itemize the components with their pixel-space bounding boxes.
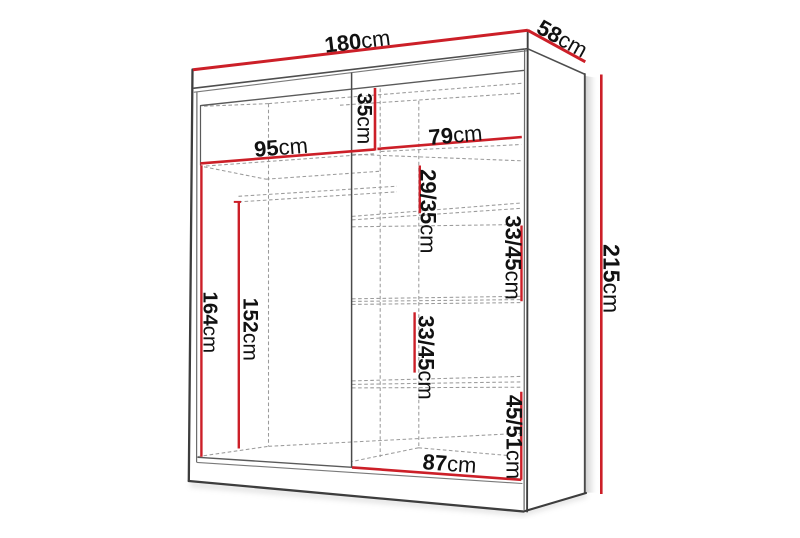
svg-text:215cm: 215cm bbox=[599, 244, 625, 313]
svg-text:33/45cm: 33/45cm bbox=[500, 215, 525, 299]
svg-text:152cm: 152cm bbox=[238, 298, 261, 361]
svg-text:79cm: 79cm bbox=[428, 120, 484, 150]
svg-text:35cm: 35cm bbox=[353, 93, 376, 144]
svg-text:87cm: 87cm bbox=[422, 449, 477, 478]
svg-text:33/45cm: 33/45cm bbox=[414, 315, 439, 399]
svg-text:164cm: 164cm bbox=[199, 292, 222, 354]
svg-text:45/51cm: 45/51cm bbox=[501, 395, 526, 479]
svg-text:95cm: 95cm bbox=[253, 133, 309, 162]
svg-text:29/35cm: 29/35cm bbox=[416, 169, 441, 253]
